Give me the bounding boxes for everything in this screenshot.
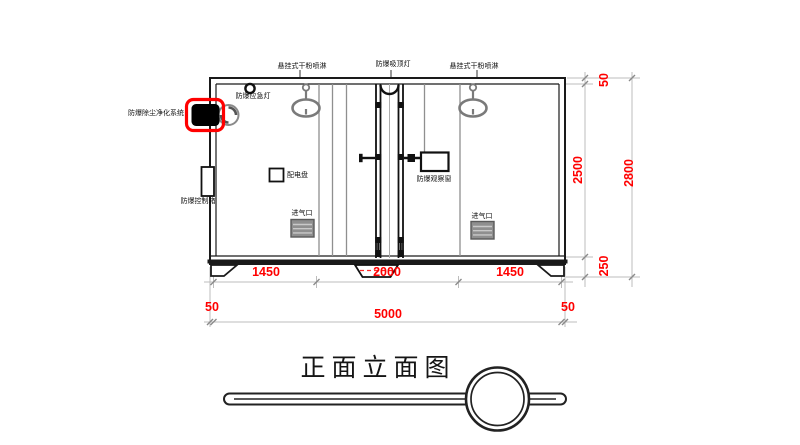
dust-purifier-unit: [187, 100, 239, 131]
dist-panel-label: 配电盘: [287, 172, 308, 179]
dimension-ticks: [207, 75, 635, 325]
distribution-panel: [270, 169, 284, 182]
drawing-title: 正面立面图: [300, 355, 455, 383]
dim-wall-right: 50: [561, 301, 575, 314]
dim-base-height: 250: [598, 256, 611, 277]
sprinkler-left-label: 悬挂式干粉喷淋: [278, 63, 327, 70]
dim-total-height: 2800: [623, 159, 636, 187]
sprinkler-right-label: 悬挂式干粉喷淋: [450, 63, 499, 70]
ceiling-lamp-label: 防爆吸顶灯: [376, 61, 411, 68]
dust-system-label: 防爆除尘净化系统: [128, 110, 184, 117]
center-column: [376, 84, 403, 258]
dimension-lines: [204, 72, 640, 327]
observation-window-label: 防爆观察窗: [417, 176, 452, 183]
observation-window: [421, 153, 449, 172]
dry-powder-sprinkler-left-icon: [293, 84, 320, 116]
air-inlet-vent-right: [471, 222, 494, 240]
dim-roof-thickness: 50: [598, 73, 611, 87]
container-shell: [208, 78, 568, 264]
label-leaders: [300, 70, 477, 77]
control-box-label: 防爆控制箱: [181, 198, 216, 205]
dim-wall-left: 50: [205, 301, 219, 314]
dim-interior-height: 2500: [572, 156, 585, 184]
air-inlet-right-label: 进气口: [472, 213, 493, 220]
dim-total-width: 5000: [374, 308, 402, 321]
control-box: [202, 167, 215, 196]
air-inlet-vent-left: [291, 220, 314, 238]
elevation-drawing: 悬挂式干粉喷淋 防爆吸顶灯 悬挂式干粉喷淋 防爆应急灯 防爆除尘净化系统 防爆控…: [0, 0, 800, 445]
dim-interior-center: 2000: [373, 266, 401, 279]
dry-powder-sprinkler-right-icon: [460, 84, 487, 116]
emergency-lamp-icon: [245, 84, 254, 93]
air-inlet-left-label: 进气口: [292, 210, 313, 217]
dim-interior-right: 1450: [496, 266, 524, 279]
dim-interior-left: 1450: [252, 266, 280, 279]
emergency-lamp-label: 防爆应急灯: [236, 93, 271, 100]
